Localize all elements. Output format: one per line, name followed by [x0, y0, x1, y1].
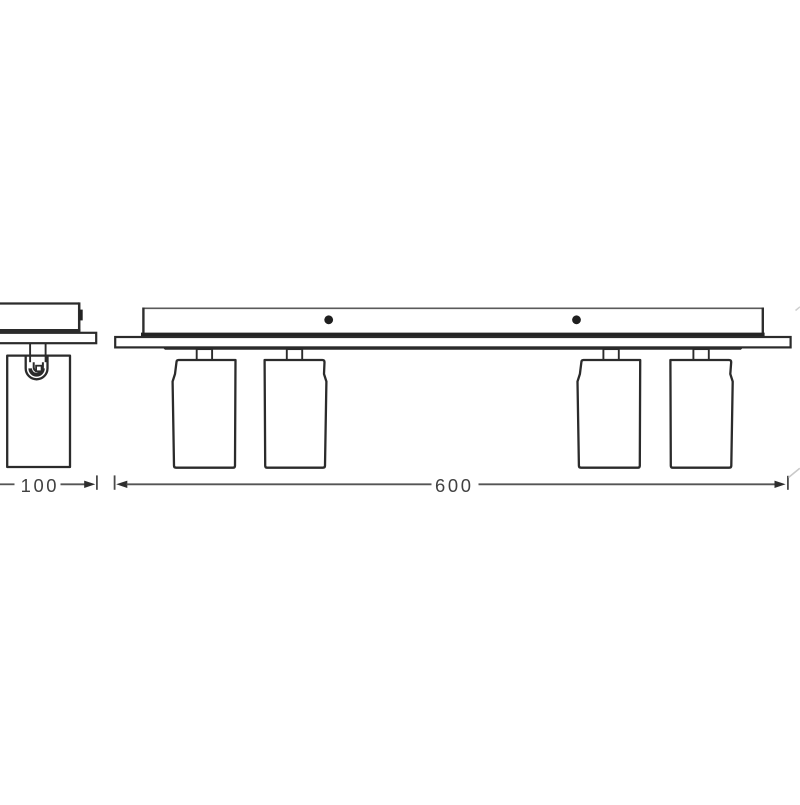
svg-text:100: 100 [21, 475, 59, 496]
svg-text:600: 600 [435, 475, 473, 496]
